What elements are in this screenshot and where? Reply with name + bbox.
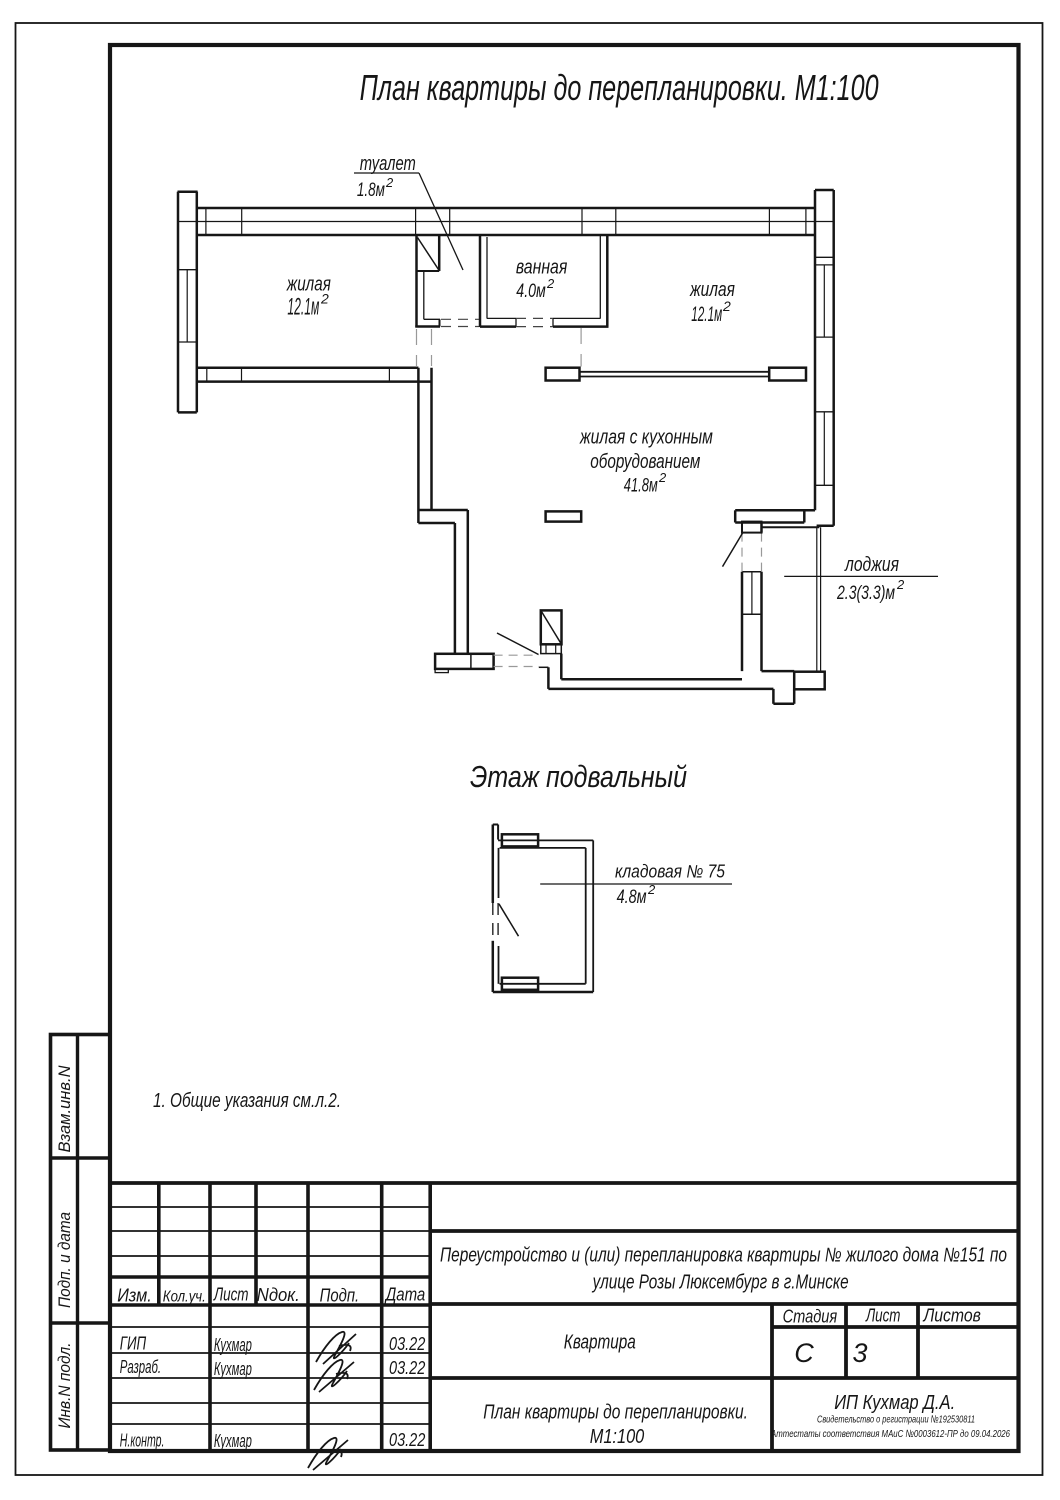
- svg-text:ГИП: ГИП: [120, 1333, 147, 1353]
- svg-text:2: 2: [385, 175, 394, 190]
- svg-text:12.1м: 12.1м: [691, 303, 722, 326]
- svg-text:12.1м: 12.1м: [287, 293, 319, 320]
- svg-text:ИП Кухмар Д.А.: ИП Кухмар Д.А.: [834, 1392, 955, 1414]
- svg-text:1. Общие указания см.л.2.: 1. Общие указания см.л.2.: [153, 1090, 341, 1112]
- svg-text:Кухмар: Кухмар: [214, 1359, 252, 1379]
- svg-text:Аттестаты соответствия МАиС №0: Аттестаты соответствия МАиС №0003612-ПР …: [770, 1428, 1010, 1440]
- svg-text:М1:100: М1:100: [590, 1426, 645, 1448]
- svg-text:Взам.инв.N: Взам.инв.N: [55, 1065, 74, 1153]
- svg-text:4.8м: 4.8м: [617, 887, 647, 908]
- svg-text:Лист: Лист: [213, 1285, 248, 1305]
- svg-text:Этаж подвальный: Этаж подвальный: [470, 759, 687, 794]
- svg-text:Стадия: Стадия: [783, 1307, 838, 1327]
- svg-text:План квартиры до перепланировк: План квартиры до перепланировки. М1:100: [360, 67, 879, 108]
- svg-text:Свидетельство о регистрации №1: Свидетельство о регистрации №192530811: [817, 1414, 975, 1426]
- svg-text:2: 2: [546, 276, 555, 291]
- svg-text:лоджия: лоджия: [844, 554, 899, 576]
- svg-text:03.22: 03.22: [389, 1358, 425, 1378]
- svg-text:Подп.: Подп.: [320, 1286, 360, 1306]
- svg-text:Переустройство и (или) перепла: Переустройство и (или) перепланировка кв…: [440, 1245, 1007, 1267]
- svg-text:Дата: Дата: [384, 1285, 425, 1305]
- svg-text:Лист: Лист: [865, 1306, 900, 1326]
- svg-text:Подп. и дата: Подп. и дата: [55, 1212, 74, 1308]
- svg-text:41.8м: 41.8м: [624, 476, 658, 497]
- svg-text:2: 2: [658, 470, 667, 485]
- svg-text:Кухмар: Кухмар: [214, 1335, 252, 1355]
- svg-text:Nдок.: Nдок.: [257, 1285, 300, 1305]
- svg-text:Квартира: Квартира: [564, 1332, 636, 1354]
- svg-text:1.8м: 1.8м: [357, 180, 385, 201]
- svg-text:туалет: туалет: [360, 153, 416, 175]
- svg-text:Инв.N подл.: Инв.N подл.: [55, 1343, 74, 1429]
- svg-text:Кухмар: Кухмар: [214, 1431, 252, 1451]
- svg-text:Разраб.: Разраб.: [120, 1357, 161, 1377]
- svg-text:2: 2: [722, 298, 731, 314]
- svg-text:2: 2: [896, 577, 905, 592]
- svg-text:2.3(3.3)м: 2.3(3.3)м: [836, 583, 895, 604]
- svg-text:оборудованием: оборудованием: [590, 451, 700, 473]
- svg-text:Н.контр.: Н.контр.: [120, 1430, 165, 1450]
- svg-text:С: С: [794, 1338, 814, 1368]
- svg-text:2: 2: [320, 291, 329, 307]
- svg-text:Листов: Листов: [923, 1306, 981, 1326]
- svg-text:кладовая № 75: кладовая № 75: [615, 862, 726, 882]
- svg-text:улице Розы Люксембург в г.Минс: улице Розы Люксембург в г.Минске: [591, 1272, 849, 1294]
- svg-text:4.0м: 4.0м: [516, 281, 546, 302]
- svg-text:03.22: 03.22: [389, 1334, 425, 1354]
- svg-text:03.22: 03.22: [389, 1430, 425, 1450]
- svg-text:жилая с кухонным: жилая с кухонным: [579, 426, 713, 448]
- svg-text:Изм.: Изм.: [117, 1286, 152, 1306]
- svg-text:3: 3: [852, 1338, 867, 1368]
- svg-text:2: 2: [647, 882, 656, 897]
- svg-text:План квартиры до перепланировк: План квартиры до перепланировки.: [483, 1402, 748, 1424]
- svg-text:ванная: ванная: [516, 257, 568, 279]
- svg-text:Кол.уч.: Кол.уч.: [163, 1289, 206, 1306]
